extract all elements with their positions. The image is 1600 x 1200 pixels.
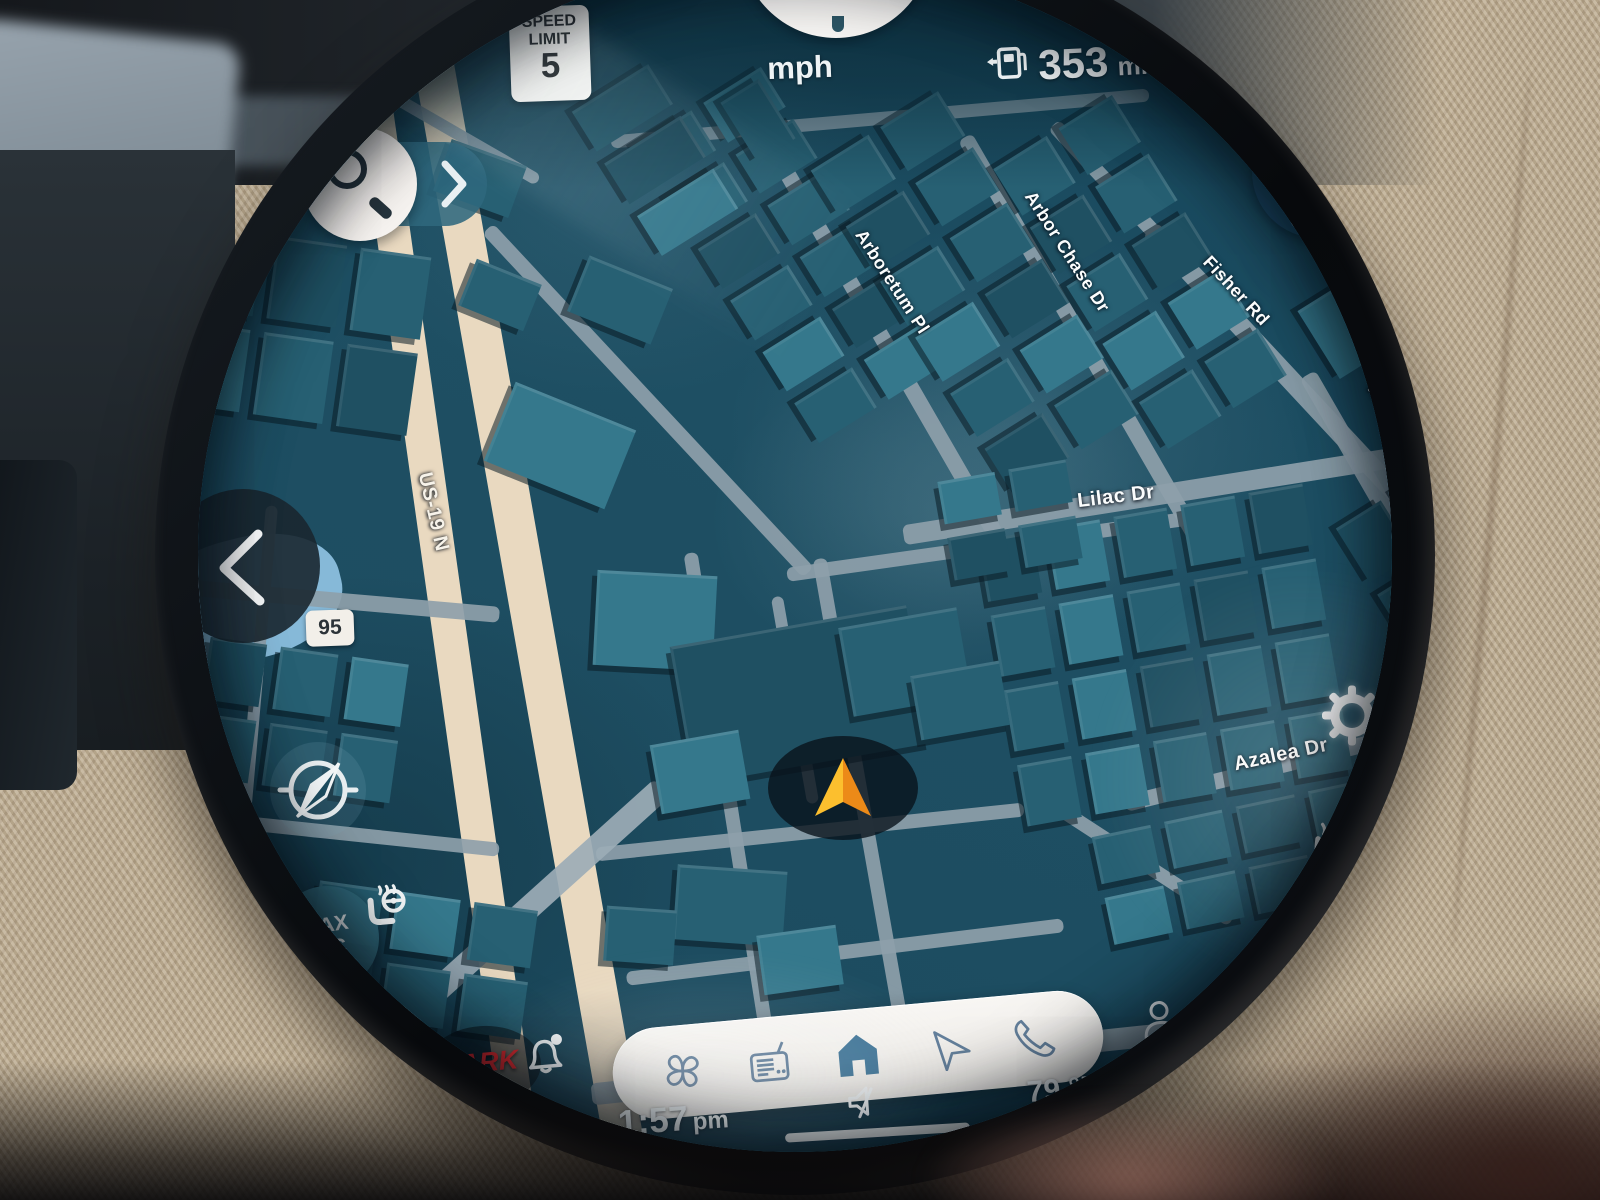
radio-icon[interactable] xyxy=(743,1037,795,1089)
voice-assistant-button[interactable] xyxy=(1135,995,1185,1050)
compass-icon xyxy=(270,742,366,838)
map-building xyxy=(198,320,250,412)
bell-icon xyxy=(519,1030,571,1082)
map-building xyxy=(1262,558,1327,629)
map-building xyxy=(1058,594,1123,665)
map-building xyxy=(198,713,257,783)
fuel-pump-icon xyxy=(984,40,1030,86)
map-building xyxy=(1126,582,1191,653)
speed-digit xyxy=(832,16,844,32)
car-status-button[interactable] xyxy=(1252,106,1384,238)
fuel-range: 353 mi xyxy=(984,34,1149,86)
map-building xyxy=(1113,507,1178,578)
clock-time: 1:57 xyxy=(617,1099,690,1143)
map-building xyxy=(252,332,334,424)
map-building xyxy=(991,606,1056,677)
heated-seat-button[interactable] xyxy=(1304,817,1359,877)
clock-suffix: pm xyxy=(692,1106,730,1135)
map-building xyxy=(198,224,264,316)
map-building xyxy=(937,472,1002,524)
speed-limit-value: 5 xyxy=(510,47,591,87)
door-handle-shadow xyxy=(0,460,77,790)
map-building xyxy=(603,905,677,965)
map-building xyxy=(202,637,268,707)
heated-steering-button[interactable] xyxy=(359,878,411,935)
seatbelt-warning-icon xyxy=(1368,104,1392,162)
map-building xyxy=(273,647,339,717)
current-location-marker xyxy=(768,736,918,840)
mute-icon xyxy=(840,1079,885,1124)
map-building xyxy=(266,236,348,328)
door-seat-status-icon xyxy=(1252,106,1384,238)
map-building xyxy=(1207,645,1272,716)
seatbelt-warning-badge xyxy=(1368,104,1392,162)
compass-button[interactable] xyxy=(270,742,366,838)
home-icon[interactable] xyxy=(830,1027,886,1083)
max-ac-left-line2: A/C xyxy=(309,935,348,963)
map-building xyxy=(1152,732,1217,803)
search-icon-handle xyxy=(367,195,394,221)
map-building xyxy=(1194,570,1259,641)
search-icon xyxy=(327,149,367,189)
fuel-range-value: 353 xyxy=(1037,44,1109,83)
map-building xyxy=(1004,681,1069,752)
map-building xyxy=(1008,459,1073,511)
location-arrow-icon xyxy=(768,736,918,840)
gear-icon xyxy=(1321,685,1383,747)
chevron-forward-icon[interactable] xyxy=(433,154,473,214)
map-building xyxy=(1181,496,1246,567)
settings-button[interactable] xyxy=(1321,685,1383,752)
map-building xyxy=(467,902,538,968)
map-building xyxy=(1071,669,1136,740)
map-building xyxy=(1139,657,1204,728)
clock: 1:57 pm xyxy=(617,1096,730,1144)
fuel-range-unit: mi xyxy=(1117,52,1149,80)
mute-button[interactable] xyxy=(840,1079,885,1129)
back-button[interactable] xyxy=(198,489,320,643)
chevron-back-icon xyxy=(198,489,320,643)
outside-temperature: 79 °F xyxy=(1026,1070,1101,1110)
phone-icon[interactable] xyxy=(1008,1013,1060,1065)
map-building xyxy=(336,344,418,436)
map-building xyxy=(1248,484,1313,555)
heated-steering-icon xyxy=(359,878,411,930)
map-building-cluster xyxy=(198,224,431,436)
speed-unit-label: mph xyxy=(767,49,834,87)
voice-assistant-icon xyxy=(1135,995,1185,1045)
cabin-photo: Arboretum Pl Arbor Chase Dr Fisher Rd Wi… xyxy=(0,0,1600,1200)
map-building xyxy=(1085,744,1150,815)
max-ac-right-line2: A/C xyxy=(1368,867,1392,891)
notifications-button[interactable] xyxy=(519,1030,571,1087)
search-button[interactable] xyxy=(303,127,417,241)
map-building xyxy=(1017,756,1082,827)
heated-seat-icon xyxy=(1304,817,1359,872)
map-building xyxy=(350,248,432,340)
gear-indicator: PARK xyxy=(443,1044,520,1081)
navigation-icon[interactable] xyxy=(921,1021,973,1073)
map-building xyxy=(756,925,844,996)
round-display[interactable]: Arboretum Pl Arbor Chase Dr Fisher Rd Wi… xyxy=(198,0,1392,1152)
map-building xyxy=(343,657,409,727)
fan-icon[interactable] xyxy=(656,1045,708,1097)
speed-limit-sign: SPEED LIMIT 5 xyxy=(508,5,591,103)
